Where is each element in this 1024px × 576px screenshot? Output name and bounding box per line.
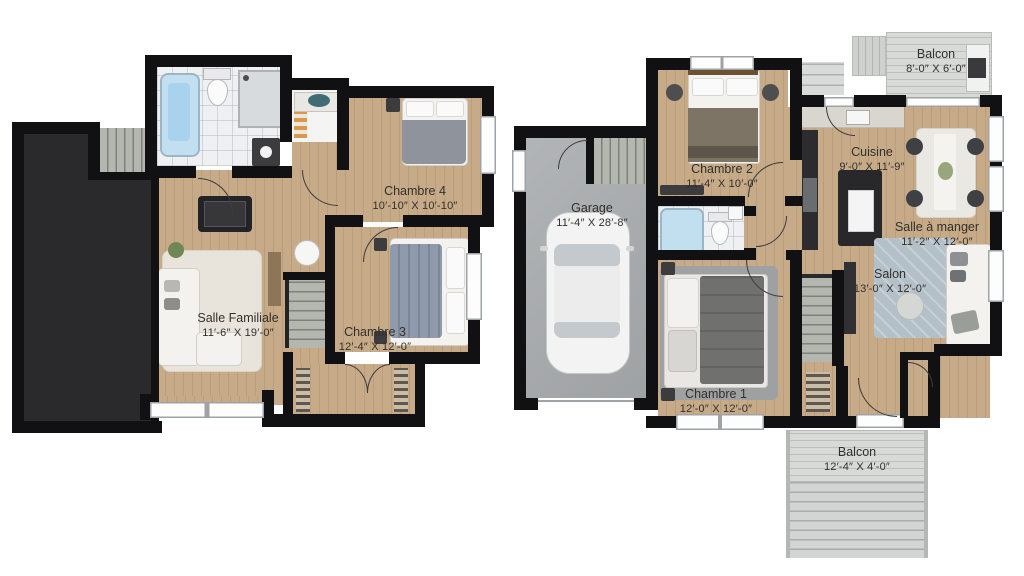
wall [586, 138, 594, 184]
wall [12, 122, 100, 134]
wall [514, 190, 526, 410]
room-label-balcon-haut: Balcon 8′-0″ X 6′-0″ [881, 46, 991, 77]
basement-stairs-top [100, 128, 151, 172]
wall [646, 58, 692, 70]
wall [232, 166, 292, 178]
wall [934, 344, 1002, 356]
room-name: Salle à manger [867, 219, 1007, 235]
window [988, 166, 1004, 212]
wall [12, 122, 24, 433]
wall [88, 172, 159, 180]
room-dims: 8′-0″ X 6′-0″ [881, 62, 991, 76]
room-name: Salon [830, 266, 950, 282]
deck-rail [924, 430, 928, 558]
room-dims: 11′-2″ X 12′-0″ [867, 235, 1007, 249]
wall [272, 414, 425, 427]
room-label-salle-familiale: Salle Familiale 11′-6″ X 19′-0″ [173, 310, 303, 341]
room-dims: 12′-4″ X 4′-0″ [797, 460, 917, 474]
stairs-to-basement [802, 278, 832, 362]
deck-rail [786, 430, 790, 558]
stair-railing [800, 274, 834, 278]
wall [836, 366, 848, 418]
garage-stairs [594, 138, 646, 184]
hanging-clothes [296, 368, 310, 412]
wall [514, 126, 526, 152]
hanging-clothes [806, 372, 830, 412]
car-mirror [540, 246, 548, 251]
floorplan-canvas: Chambre 4 10′-10″ X 10′-10″ Salle Famili… [0, 0, 1024, 576]
wall [337, 78, 349, 170]
throw-pillow [950, 252, 968, 266]
wall [283, 352, 293, 418]
throw-pillow [950, 270, 966, 282]
plant-icon [168, 242, 184, 258]
round-table [294, 240, 320, 266]
stove [803, 178, 817, 212]
room-label-chambre2: Chambre 2 11′-4″ X 10′-0″ [657, 161, 787, 192]
wall [646, 416, 678, 428]
bed-runner [688, 146, 758, 158]
entry-door-top [824, 97, 854, 107]
balcony-door [906, 97, 980, 107]
bathroom-sink [728, 206, 743, 220]
room-label-salon: Salon 13′-0″ X 12′-0″ [830, 266, 950, 297]
wall [468, 227, 480, 255]
balcon-bas-stairs [790, 482, 924, 558]
window [480, 116, 496, 174]
blanket-chambre1 [700, 276, 764, 384]
dining-chair [967, 190, 984, 207]
room-dims: 12′-4″ X 12′-0″ [310, 340, 440, 354]
room-label-cuisine: Cuisine 9′-0″ X 11′-9″ [812, 144, 932, 175]
vanity-sink [260, 146, 272, 158]
wall [928, 352, 940, 428]
window [150, 402, 264, 418]
room-name: Chambre 1 [651, 386, 781, 402]
wall [646, 58, 658, 410]
car-mirror [626, 246, 634, 251]
wall [283, 272, 330, 280]
wall [790, 366, 802, 428]
wall [468, 320, 480, 352]
shower-head-icon [243, 75, 249, 81]
wall [514, 126, 658, 138]
wall [482, 98, 494, 118]
wall [280, 55, 292, 142]
room-label-chambre1: Chambre 1 12′-0″ X 12′-0″ [651, 386, 781, 417]
wall [337, 86, 494, 98]
window [988, 116, 1004, 162]
bathtub-basin [168, 83, 190, 141]
car-windshield [554, 244, 620, 266]
wall [514, 398, 538, 410]
wall [646, 250, 744, 260]
pillow [668, 330, 697, 372]
room-name: Cuisine [812, 144, 932, 160]
room-dims: 9′-0″ X 11′-9″ [812, 160, 932, 174]
nightstand [666, 84, 683, 101]
pillow [446, 292, 465, 334]
throw-pillow [164, 298, 180, 310]
wall [145, 55, 157, 178]
room-name: Chambre 4 [350, 183, 480, 199]
throw-pillow [164, 280, 180, 292]
nightstand [661, 262, 675, 275]
blanket-chambre4 [402, 120, 466, 164]
room-name: Chambre 3 [310, 324, 440, 340]
car-rear-window [554, 322, 620, 338]
wall [403, 215, 482, 227]
laundry-basin [308, 94, 330, 107]
room-label-chambre4: Chambre 4 10′-10″ X 10′-10″ [350, 183, 480, 214]
nightstand [762, 84, 779, 101]
wall [744, 248, 756, 260]
wall [88, 122, 100, 178]
pillow [667, 278, 699, 328]
window [512, 150, 526, 192]
dining-chair [906, 190, 923, 207]
wall [790, 250, 802, 366]
room-name: Chambre 2 [657, 161, 787, 177]
pillow [726, 78, 758, 96]
wall [145, 55, 292, 67]
room-dims: 13′-0″ X 12′-0″ [830, 282, 950, 296]
wall [482, 172, 494, 227]
room-dims: 11′-4″ X 10′-0″ [657, 177, 787, 191]
centerpiece-plant-icon [938, 162, 953, 180]
room-name: Salle Familiale [173, 310, 303, 326]
wall [802, 416, 856, 428]
laundry-shelf [294, 112, 307, 138]
wall [785, 196, 802, 206]
nightstand [386, 98, 400, 112]
car-roof [554, 266, 620, 322]
pillow [446, 247, 465, 289]
room-dims: 12′-0″ X 12′-0″ [651, 402, 781, 416]
wall [646, 196, 745, 206]
window [988, 250, 1004, 302]
room-label-chambre3: Chambre 3 12′-4″ X 12′-0″ [310, 324, 440, 355]
room-label-salle-a-manger: Salle à manger 11′-2″ X 12′-0″ [867, 219, 1007, 250]
room-label-garage: Garage 11′-4″ X 28′-8″ [532, 200, 652, 231]
room-dims: 10′-10″ X 10′-10″ [350, 199, 480, 213]
pillow [406, 101, 434, 117]
bathtub2 [660, 208, 704, 256]
room-dims: 11′-4″ X 28′-8″ [532, 216, 652, 230]
pillow [436, 101, 464, 117]
hanging-clothes [394, 368, 408, 412]
front-porch-steps [800, 62, 844, 95]
garage-door [538, 400, 634, 408]
room-name: Balcon [797, 444, 917, 460]
room-name: Balcon [881, 46, 991, 62]
dining-chair [967, 138, 984, 155]
wall [854, 95, 906, 107]
wall [790, 58, 802, 160]
desk [268, 252, 281, 306]
wall [900, 352, 908, 418]
wall [990, 95, 1002, 118]
room-name: Garage [532, 200, 652, 216]
window [690, 56, 754, 70]
wall [744, 206, 756, 216]
wall [12, 421, 162, 433]
wall [325, 215, 363, 227]
wall [151, 168, 159, 421]
pillow [692, 78, 724, 96]
wall [415, 352, 425, 418]
window [466, 253, 482, 320]
room-dims: 11′-6″ X 19′-0″ [173, 326, 303, 340]
wall [790, 95, 824, 107]
room-label-balcon-bas: Balcon 12′-4″ X 4′-0″ [797, 444, 917, 475]
